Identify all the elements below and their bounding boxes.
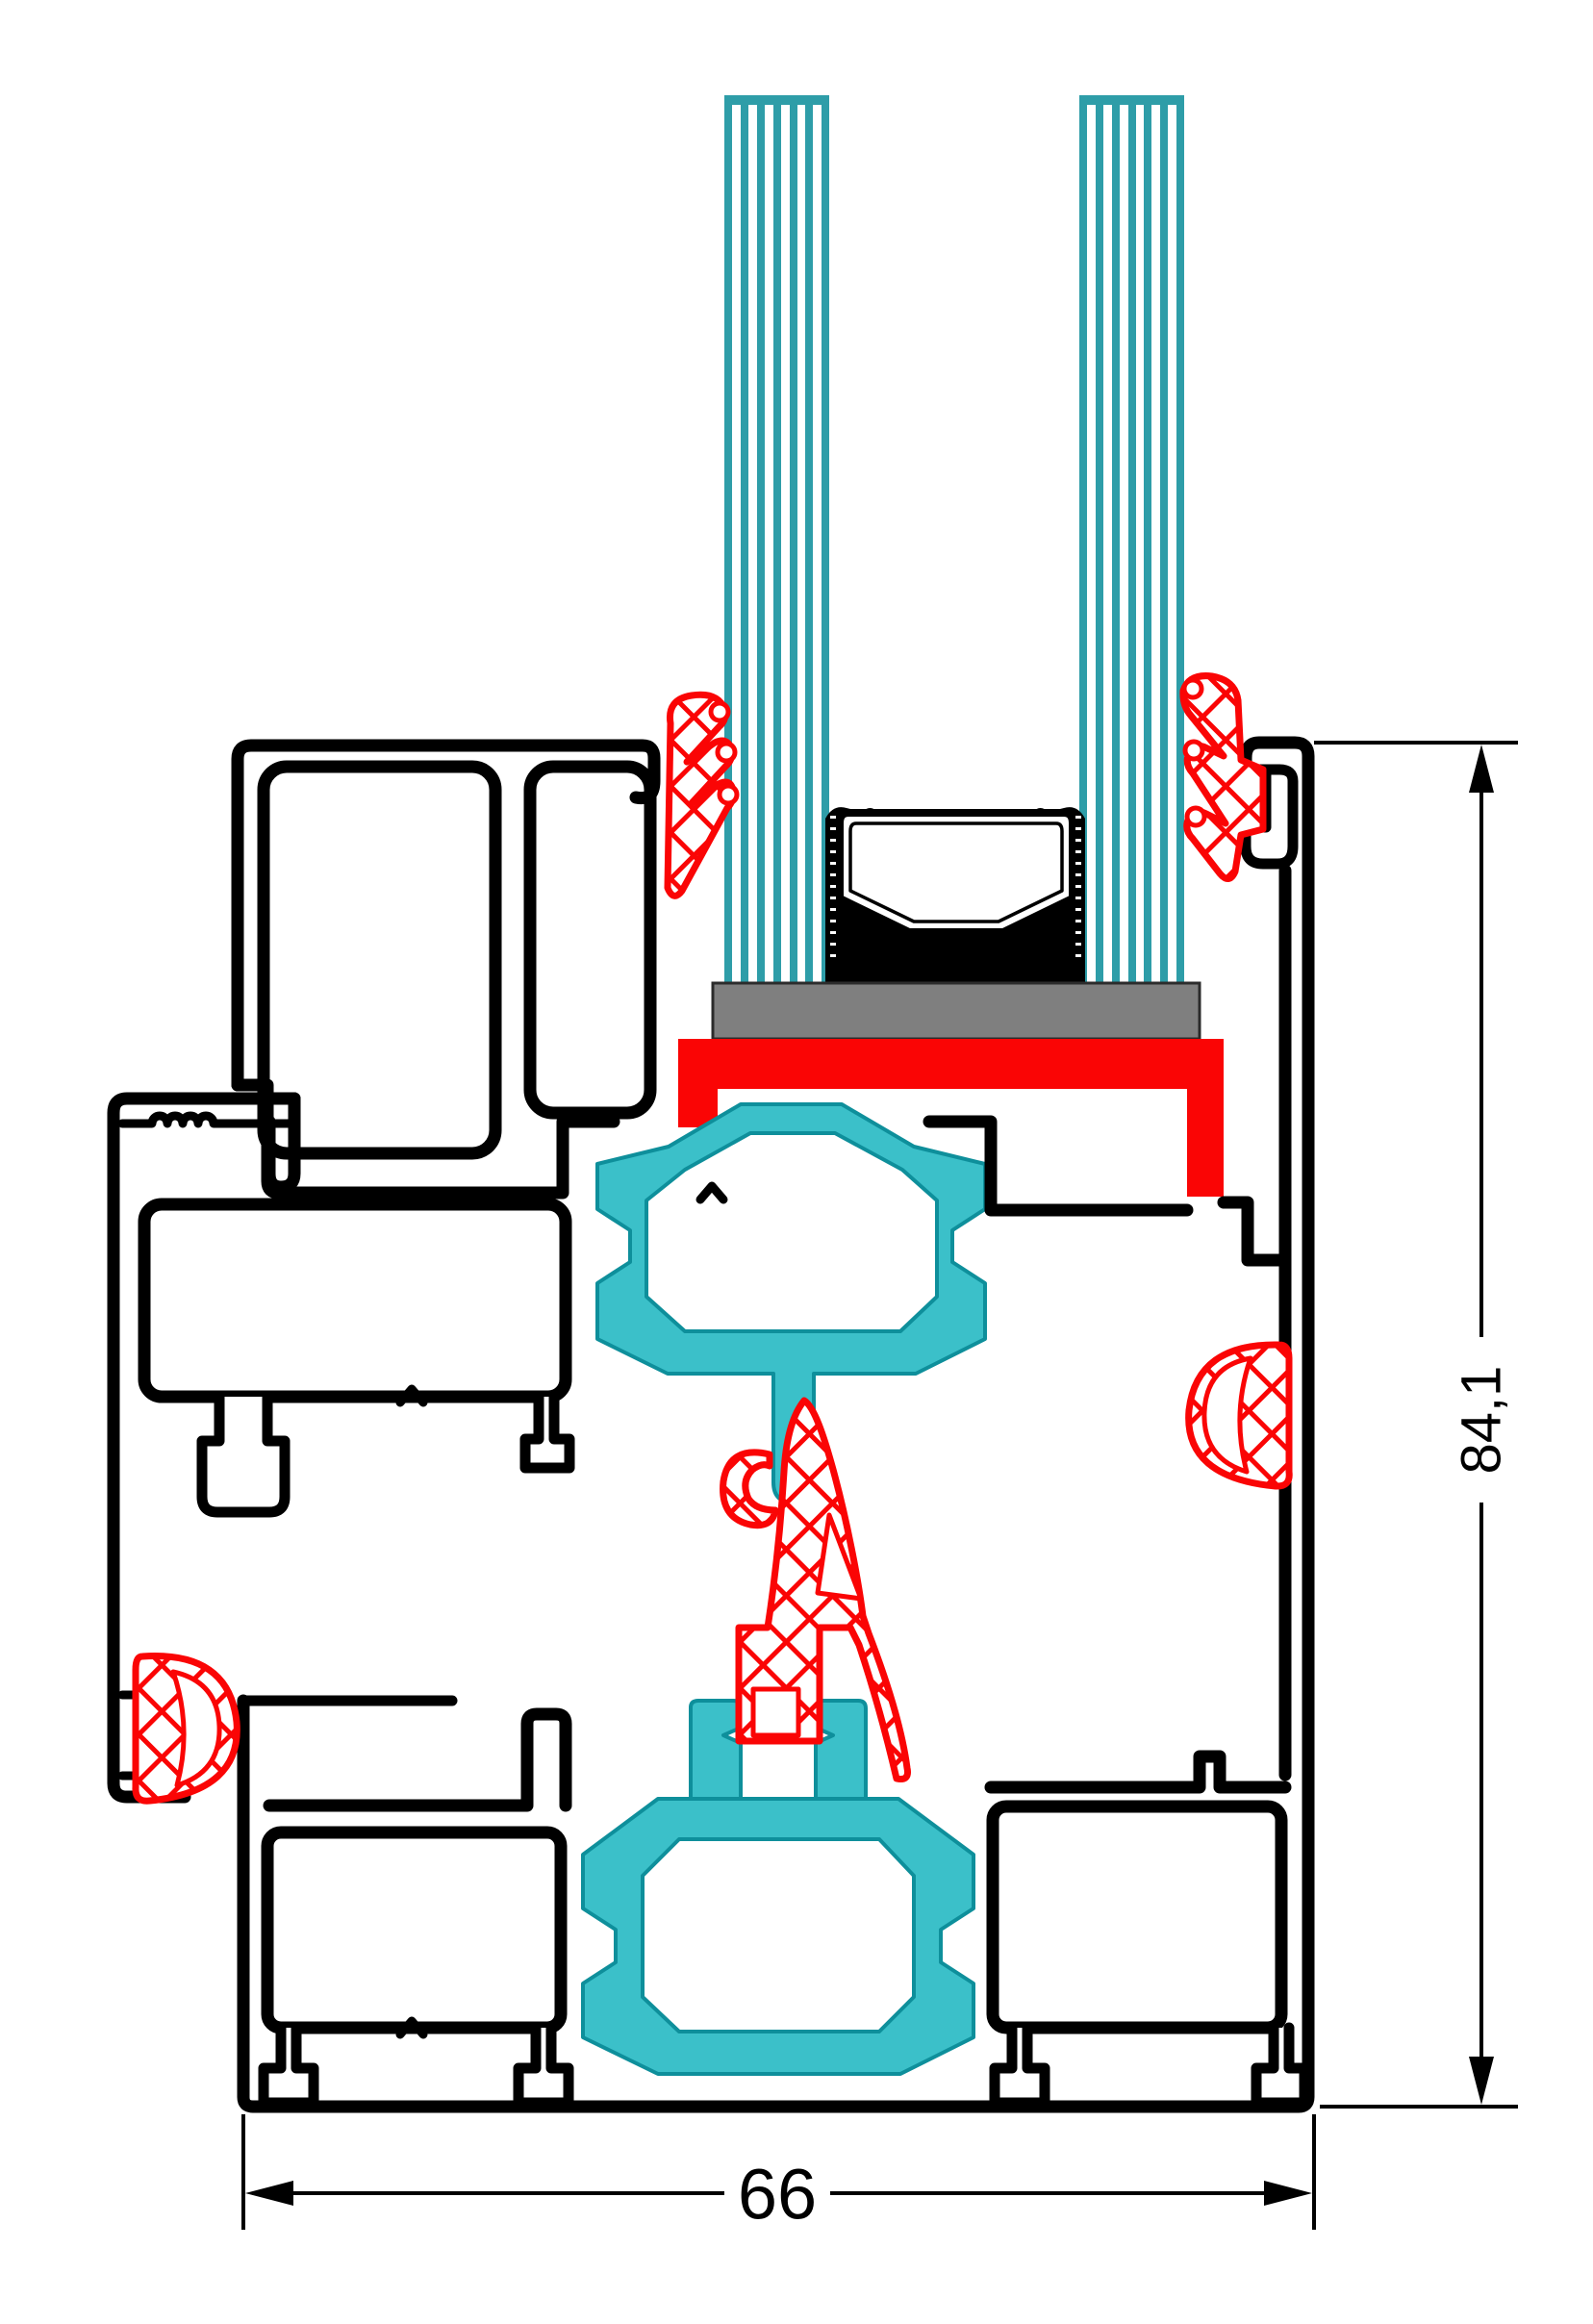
width-dimension-label: 66 [738, 2155, 817, 2235]
height-dimension-label: 84,1 [1451, 1366, 1513, 1475]
spacer-insert [840, 813, 1073, 932]
thermal-break-lower [583, 1701, 973, 2074]
sash-chamber-right [530, 767, 650, 1113]
frame-foot [202, 1397, 285, 1512]
frame-left-chamber [144, 1204, 566, 1397]
frame-foot [1256, 2028, 1304, 2103]
frame-foot [264, 2028, 314, 2103]
center-gasket [723, 1401, 908, 1780]
frame-foot [525, 1397, 569, 1468]
profile-cross-section-page: 84,1 66 [0, 0, 1593, 2324]
frame-foot [518, 2028, 569, 2103]
bulb-gasket-left [136, 1656, 237, 1802]
glass-pane-right [1079, 100, 1184, 983]
bulb-gasket-right [1189, 1345, 1290, 1486]
glass-pane-left [724, 100, 829, 983]
frame-foot [995, 2028, 1045, 2103]
cross-section-drawing: 84,1 66 [0, 0, 1593, 2324]
arrow-down-icon [1469, 2057, 1494, 2105]
arrow-up-icon [1469, 745, 1494, 793]
frame-bottom-chamber-right [993, 1806, 1281, 2028]
spacer-bar [825, 807, 1085, 983]
frame-bottom-chamber-left [267, 1832, 561, 2028]
arrow-right-icon [1264, 2181, 1312, 2206]
dimension-width: 66 [243, 2114, 1314, 2235]
dimension-height: 84,1 [1314, 743, 1518, 2107]
setting-block [713, 983, 1200, 1039]
arrow-left-icon [245, 2181, 293, 2206]
